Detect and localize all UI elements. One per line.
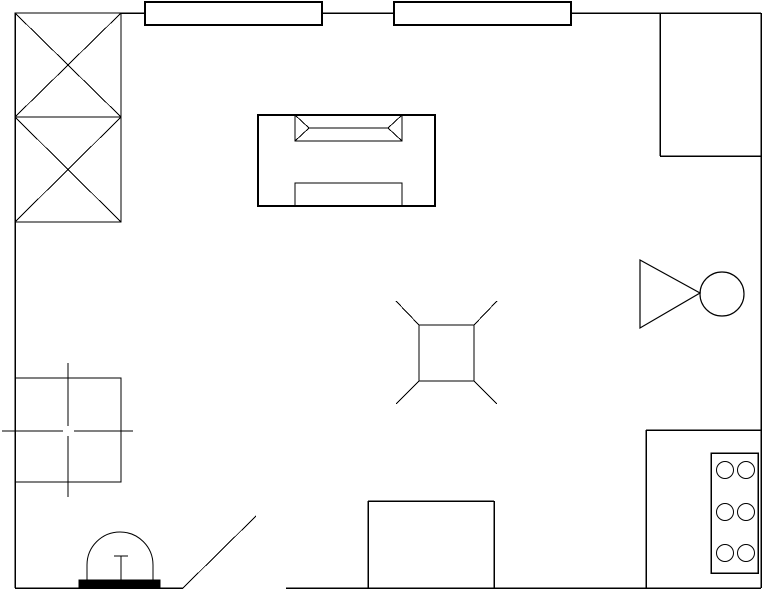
floor-plan-canvas[interactable]: [0, 0, 769, 600]
door-leaf: [183, 516, 256, 588]
wardrobe-crossed-boxes: [15, 13, 121, 222]
table-with-chair-legs: [396, 301, 497, 404]
floor-lamp-symbol: [640, 260, 744, 328]
square-table-centermark: [2, 363, 133, 497]
corner-closet: [660, 13, 761, 156]
stove-with-burners: [711, 453, 758, 573]
entry-dome-fixture: [79, 532, 160, 588]
sofa-symbol: [258, 115, 435, 206]
window-symbol-2: [394, 2, 571, 25]
bottom-cabinet: [368, 501, 494, 588]
window-symbol-1: [145, 2, 322, 25]
